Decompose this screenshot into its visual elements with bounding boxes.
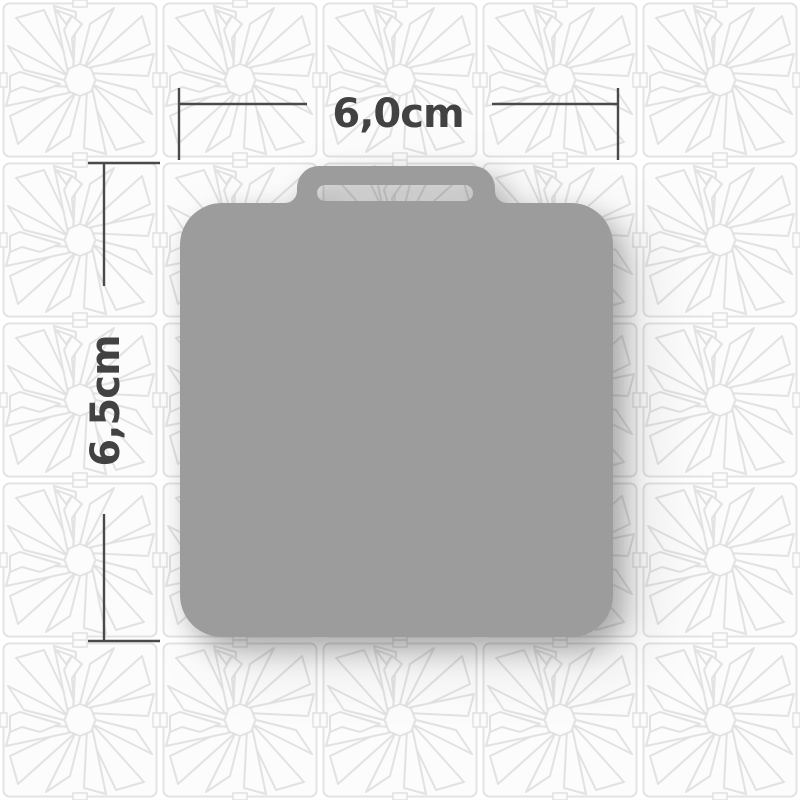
diagram-canvas: 6,0cm 6,5cm [0, 0, 800, 800]
height-dimension-label: 6,5cm [83, 335, 129, 466]
width-dimension-label: 6,0cm [332, 91, 463, 137]
tag-shadow-group [180, 166, 613, 637]
tag-silhouette [180, 166, 613, 637]
